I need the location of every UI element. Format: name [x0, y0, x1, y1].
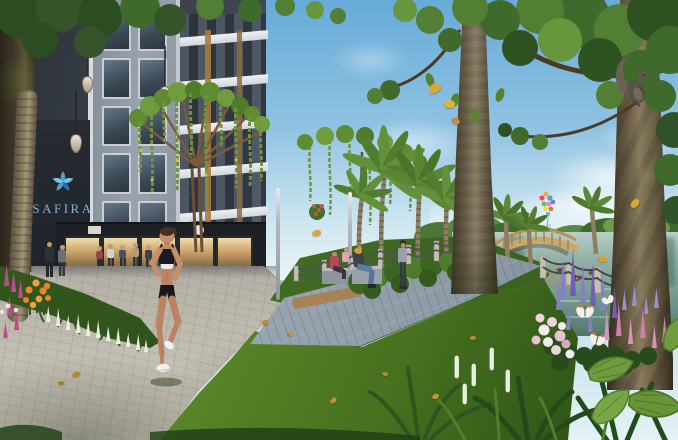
- tower-window: [102, 153, 131, 194]
- pedestrian: [166, 247, 173, 265]
- pedestrian: [132, 243, 139, 266]
- cloud: [330, 40, 410, 80]
- cloud: [352, 118, 472, 168]
- tower-window: [102, 106, 131, 147]
- pedestrian: [107, 244, 114, 266]
- tower-window: [102, 58, 131, 99]
- pedestrian: [145, 245, 152, 267]
- shop-sign: [88, 226, 101, 234]
- star-flower-icon: [50, 168, 76, 194]
- lantern-cord: [164, 46, 166, 88]
- wood-accent: [205, 30, 211, 243]
- park-rendering-scene: SAFIRA: [0, 0, 678, 440]
- lantern-cord: [75, 90, 77, 136]
- pedestrian: [96, 246, 103, 266]
- tower-window: [138, 10, 167, 51]
- building-shadow: [0, 266, 280, 278]
- shop-sign: [194, 225, 204, 235]
- pedestrian: [119, 245, 126, 266]
- light-pole: [276, 188, 280, 300]
- tower-window: [102, 10, 131, 51]
- pedestrian: [157, 246, 164, 266]
- tower-window: [138, 153, 167, 194]
- wood-accent: [237, 30, 242, 242]
- tower-window: [138, 106, 167, 147]
- lantern-cord: [87, 26, 89, 78]
